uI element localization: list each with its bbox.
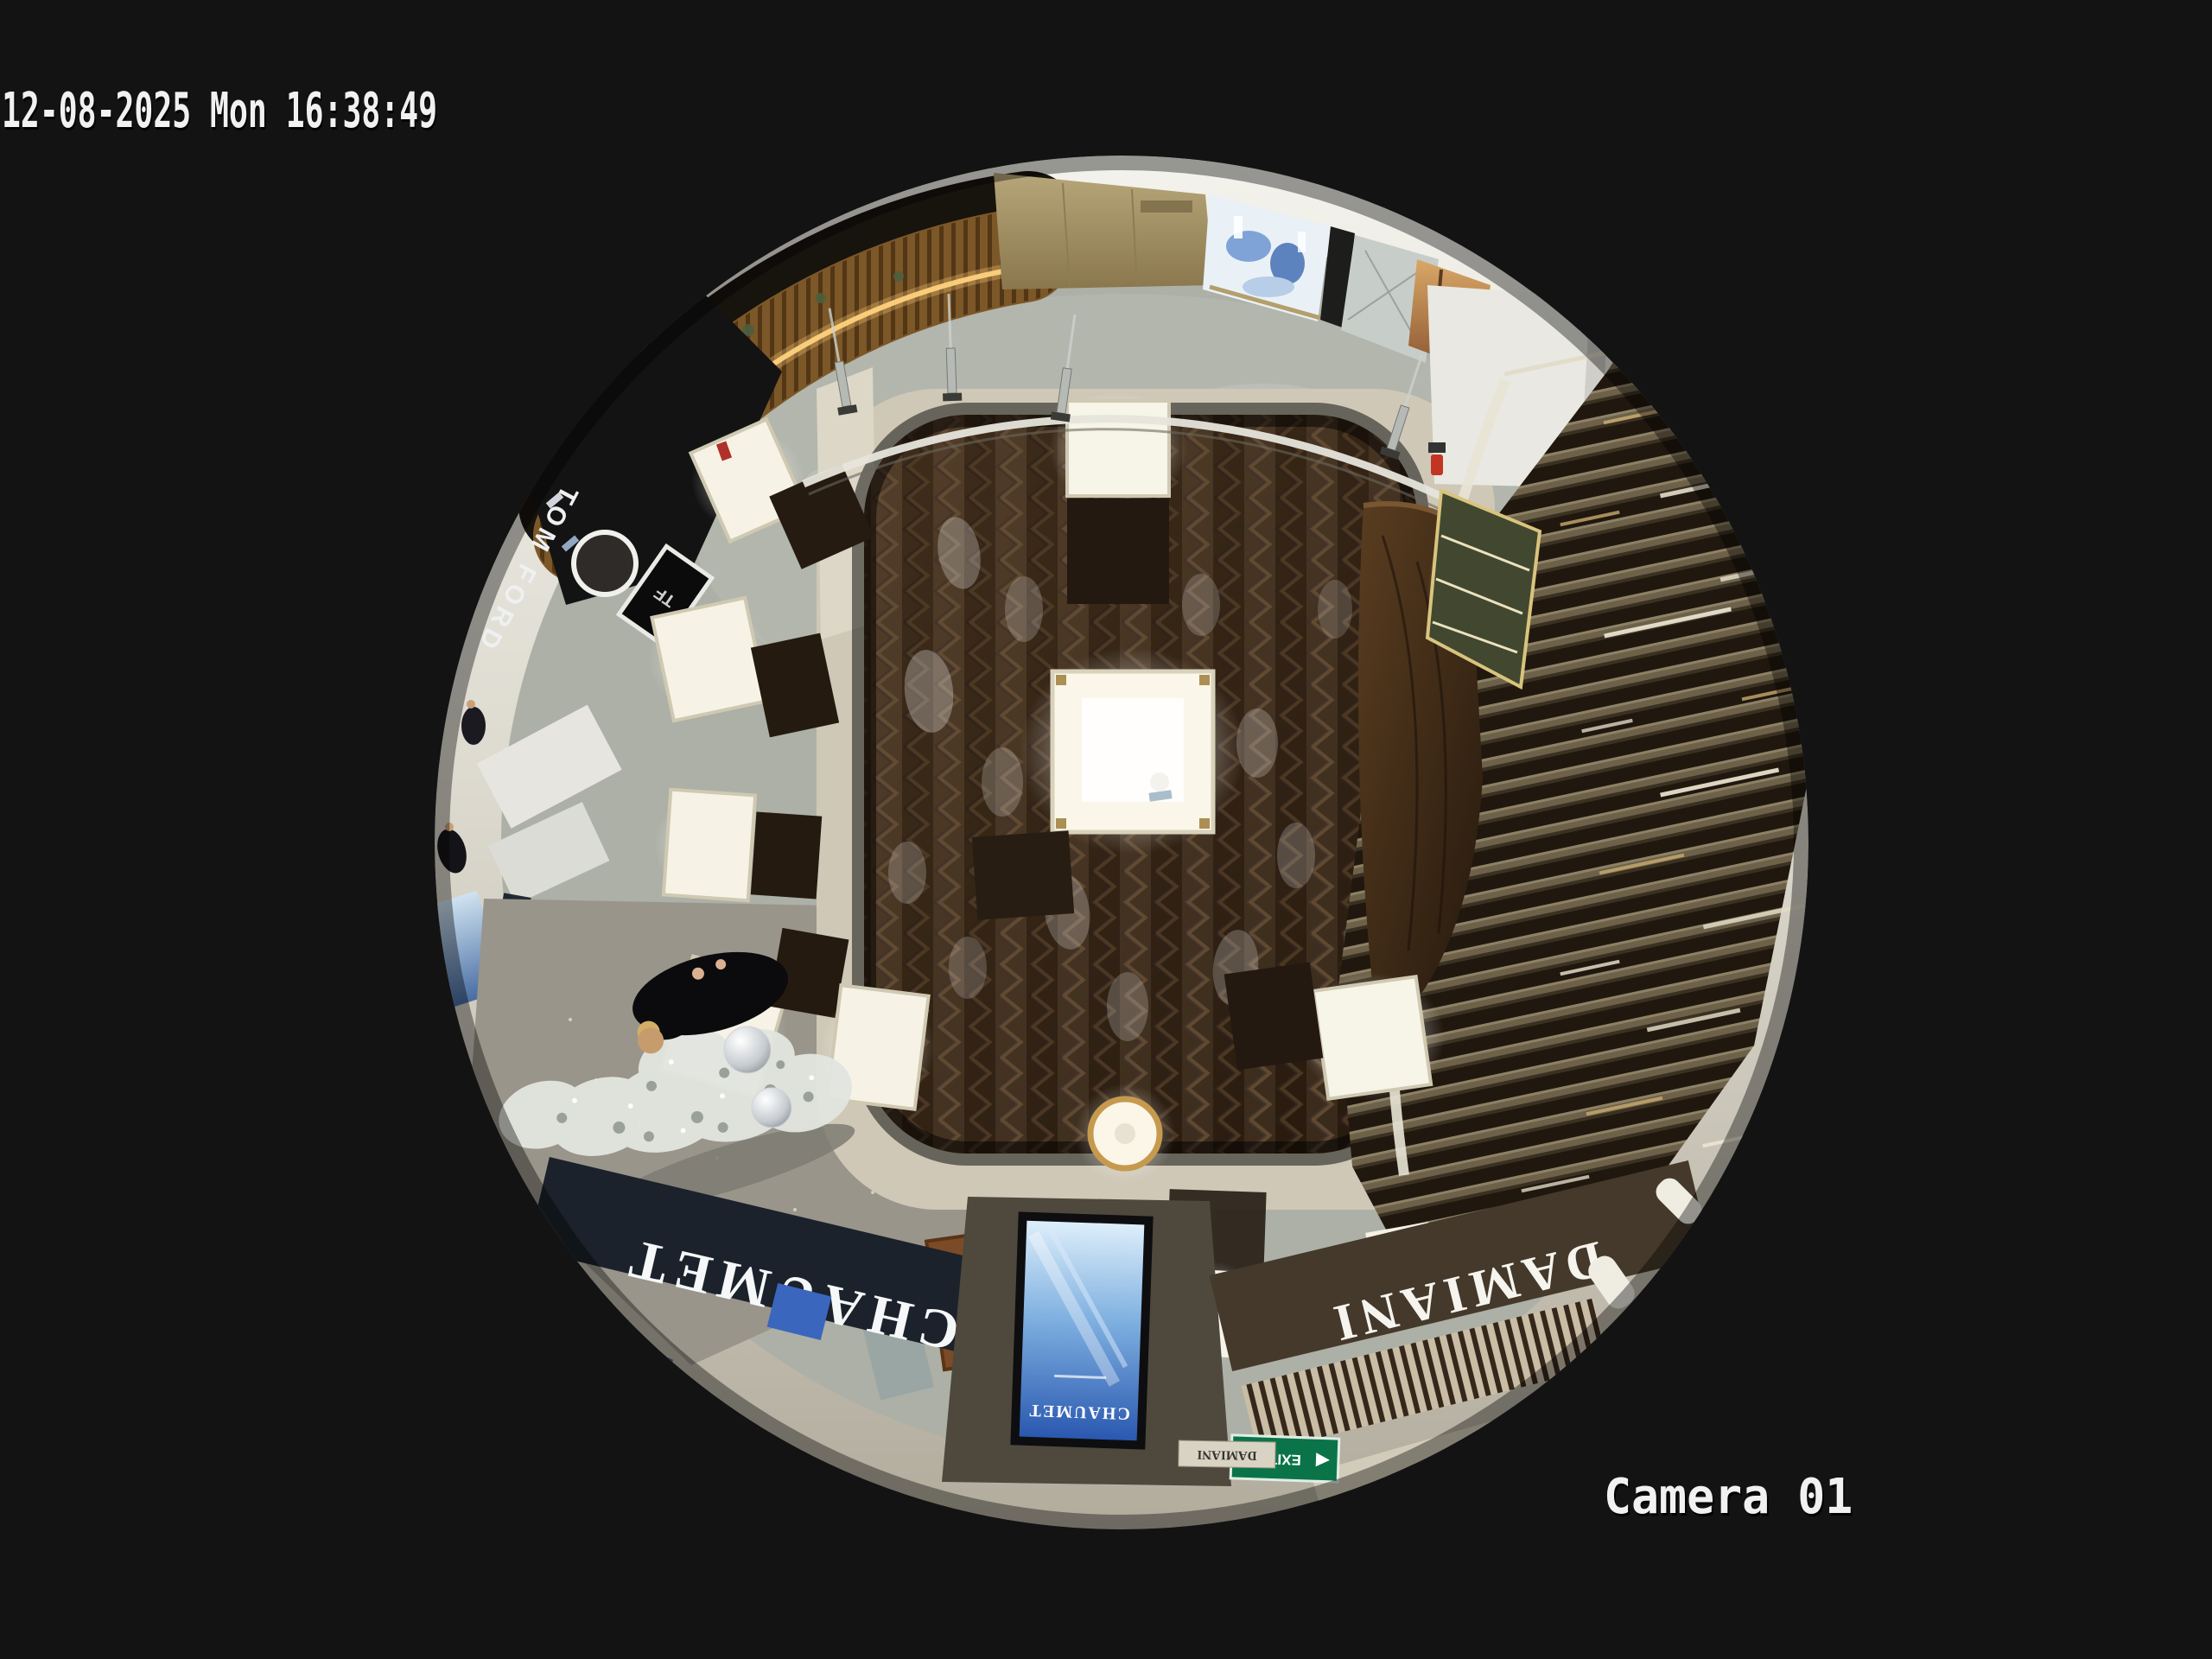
display-case bbox=[1313, 976, 1431, 1098]
timestamp-overlay: 12-08-2025 Mon 16:38:49 bbox=[2, 83, 437, 139]
mirror-ball-ornament bbox=[724, 1027, 771, 1073]
round-mirror bbox=[574, 532, 636, 594]
camera-label: Camera 01 bbox=[1604, 1469, 1853, 1525]
damiani-plaque: DAMIANI bbox=[1179, 1440, 1276, 1468]
display-case bbox=[652, 598, 767, 721]
pedestal bbox=[972, 830, 1074, 920]
small-shop-sign bbox=[1141, 200, 1192, 213]
chaumet-screen-logo: CHAUMET bbox=[1027, 1401, 1130, 1423]
svg-text:DAMIANI: DAMIANI bbox=[1197, 1447, 1257, 1462]
center-display-case bbox=[1052, 671, 1213, 832]
digital-screen: CHAUMET bbox=[1010, 1211, 1153, 1449]
pedestal bbox=[1067, 499, 1169, 604]
fisheye-view: TOM FORD TF LA MER bbox=[0, 0, 2212, 1659]
mirror-ball-ornament bbox=[752, 1088, 791, 1128]
pedestal bbox=[751, 811, 823, 899]
pedestal bbox=[1224, 963, 1324, 1071]
fire-extinguisher bbox=[1428, 442, 1446, 475]
display-case bbox=[664, 790, 755, 901]
